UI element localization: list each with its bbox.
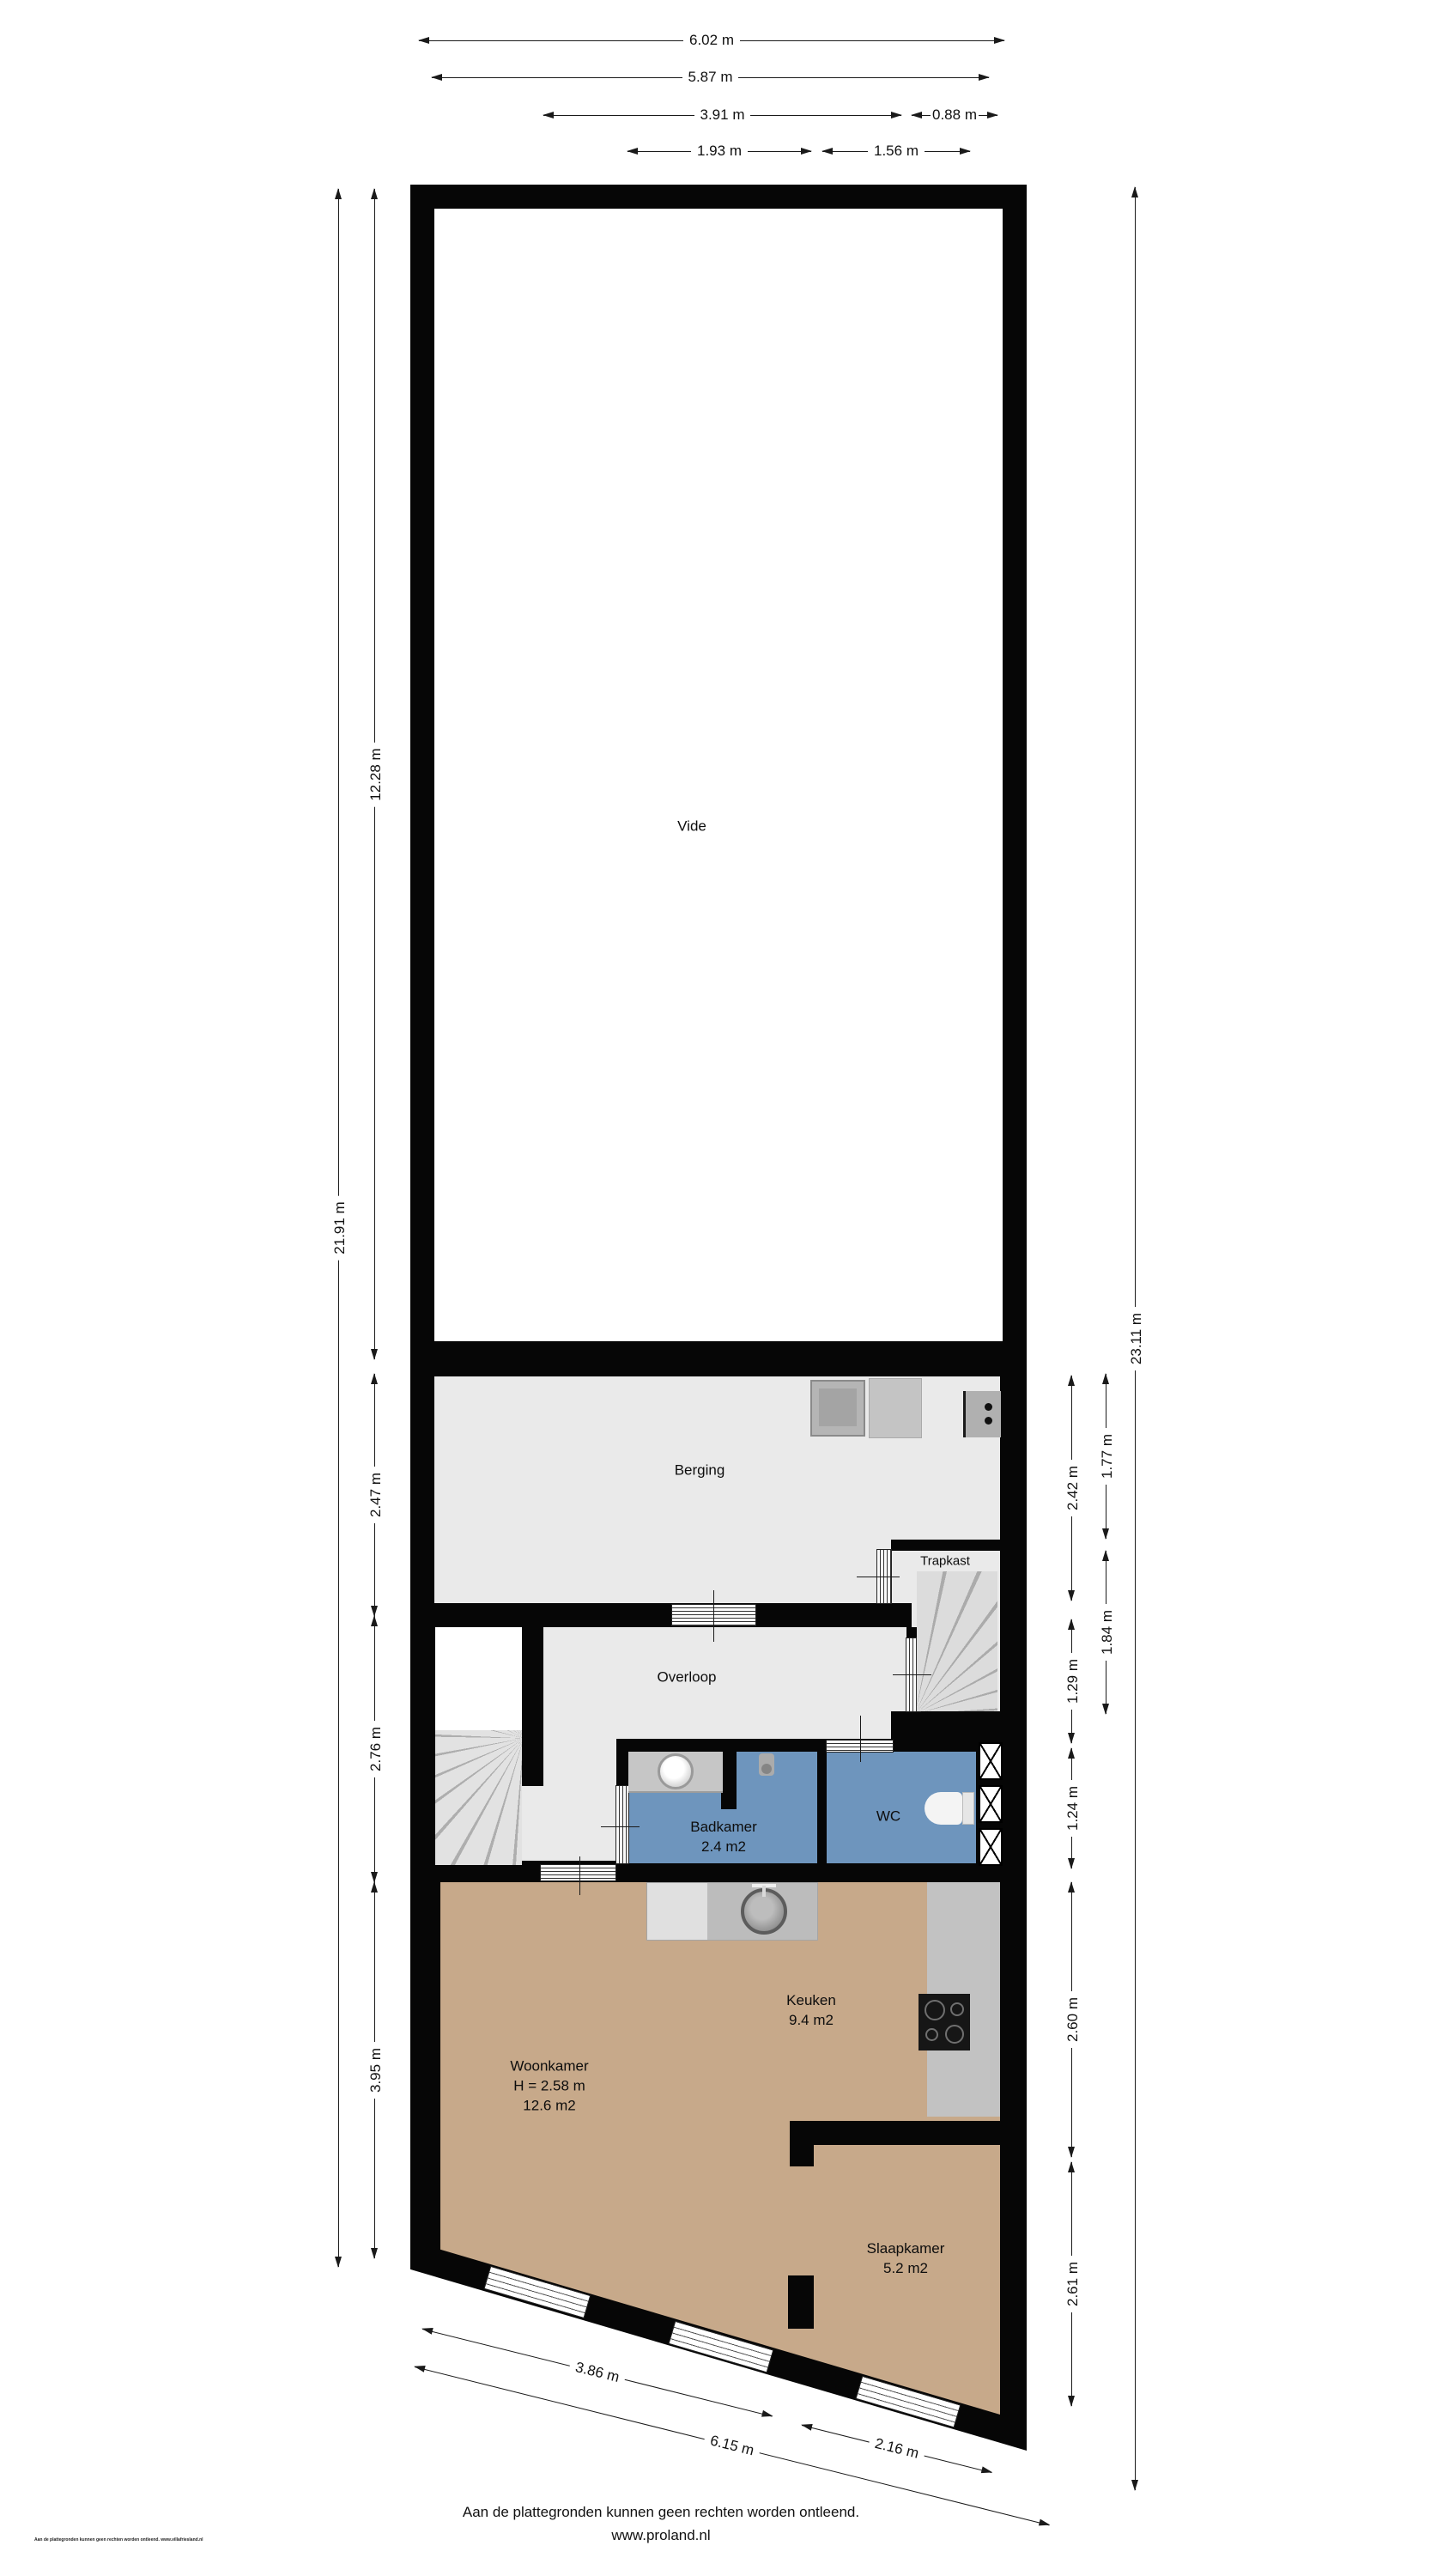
wall-badkamer-wc (817, 1752, 827, 1866)
dim-left-276: 2.76 m (374, 1616, 375, 1882)
room-label-woonkamer: Woonkamer H = 2.58 m 12.6 m2 (510, 2057, 588, 2116)
room-label-trapkast: Trapkast (920, 1552, 970, 1571)
dim-right-184: 1.84 m (1106, 1551, 1106, 1714)
room-overloop (543, 1627, 908, 1739)
kitchen-island (646, 1882, 818, 1941)
room-label-overloop: Overloop (658, 1668, 717, 1687)
room-label-wc: WC (876, 1807, 900, 1826)
kitchen-faucet-stem (762, 1886, 766, 1897)
wall-vide-berging (410, 1341, 1027, 1376)
wall-under-stairs (891, 1711, 1027, 1739)
toilet-icon (925, 1792, 974, 1825)
door-badkamer (616, 1786, 628, 1863)
dimension-tick (601, 1826, 640, 1827)
wall-slaapkamer-stub (788, 2275, 814, 2329)
room-label-vide: Vide (677, 817, 706, 836)
shaft-icon-2 (979, 1785, 1003, 1823)
door-overloop-woonkamer (541, 1865, 615, 1880)
dim-width-156: 1.56 m (822, 151, 970, 152)
room-label-berging: Berging (675, 1461, 725, 1480)
wall-badkamer-left-stub (616, 1752, 628, 1786)
shaft-icon-3 (979, 1828, 1003, 1866)
room-label-keuken: Keuken9.4 m2 (786, 1990, 836, 2030)
stairs-lower-flight (435, 1730, 522, 1865)
dim-right-260: 2.60 m (1071, 1882, 1072, 2157)
wall-slaapkamer-left (790, 2121, 814, 2166)
dim-width-391: 3.91 m (543, 115, 901, 116)
room-label-slaapkamer: Slaapkamer5.2 m2 (867, 2239, 945, 2278)
shower-icon (759, 1753, 774, 1776)
dim-left-1228: 12.28 m (374, 189, 375, 1359)
cooktop-icon (919, 1994, 970, 2050)
dimension-tick (857, 1577, 900, 1577)
dim-width-inner: 5.87 m (432, 77, 989, 78)
washing-machine-icon (810, 1380, 865, 1437)
dim-right-242: 2.42 m (1071, 1376, 1072, 1601)
dim-bottom-216: 2.16 m (802, 2425, 991, 2473)
fine-print-disclaimer: Aan de plattegronden kunnen geen rechten… (34, 2537, 203, 2543)
room-overloop-corridor (543, 1739, 616, 1861)
dimension-tick (579, 1856, 580, 1895)
stairwell-landing (435, 1621, 522, 1730)
room-label-badkamer: Badkamer2.4 m2 (690, 1817, 756, 1856)
wall-berging-overloop-right (755, 1603, 912, 1627)
electrical-panel-icon (963, 1391, 1001, 1437)
dim-right-261: 2.61 m (1071, 2162, 1072, 2406)
arrow-right-icon (994, 37, 1005, 44)
room-overloop-corridor-2 (522, 1786, 543, 1861)
arrow-left-icon (418, 37, 429, 44)
bathroom-sink-icon (658, 1753, 694, 1789)
dim-left-395: 3.95 m (374, 1882, 375, 2258)
floor-plan: Vide Berging Trapkast Overloop Badkamer2… (0, 0, 1449, 2576)
footer-disclaimer: Aan de plattegronden kunnen geen rechten… (0, 2504, 1322, 2521)
dimension-tick (713, 1590, 714, 1642)
wall-wc-top-right (893, 1739, 1027, 1752)
dim-left-247: 2.47 m (374, 1374, 375, 1616)
dim-right-124: 1.24 m (1071, 1748, 1072, 1868)
dim-left-2191: 21.91 m (338, 189, 339, 2267)
dim-right-129: 1.29 m (1071, 1619, 1072, 1743)
dim-width-total: 6.02 m (419, 40, 1004, 41)
dimension-tick (860, 1716, 861, 1762)
stairs-upper-flight (917, 1571, 997, 1711)
wall-slaapkamer-top (792, 2121, 1000, 2145)
wall-badkamer-top (616, 1739, 827, 1752)
wall-trapkast-top (891, 1540, 1000, 1551)
dimension-tick (893, 1674, 931, 1675)
dim-width-193: 1.93 m (627, 151, 811, 152)
dim-right-177: 1.77 m (1106, 1374, 1106, 1539)
wall-woonkamer-top (410, 1863, 1027, 1882)
room-vide (434, 209, 1003, 1341)
wall-stairwell-right (522, 1615, 543, 1786)
wall-badkamer-inner-stub (721, 1752, 737, 1809)
dim-width-088: 0.88 m (912, 115, 997, 116)
dim-right-2311: 23.11 m (1135, 187, 1136, 2490)
shaft-icon-1 (979, 1742, 1003, 1780)
dryer-icon (869, 1378, 922, 1438)
